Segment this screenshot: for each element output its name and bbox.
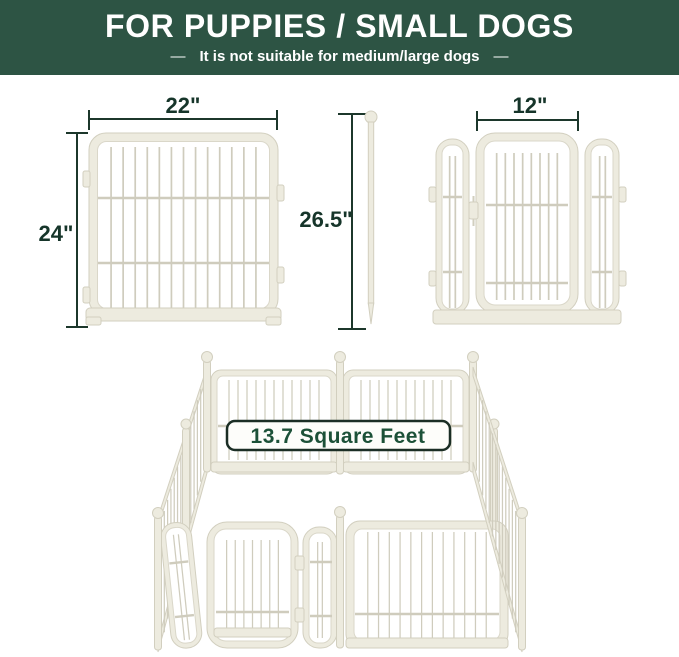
panel-height-label: 24" <box>39 221 74 246</box>
door-width-label: 12" <box>513 93 548 118</box>
playpen-diagram: 13.7 Square Feet <box>153 352 528 653</box>
stake-height-label: 26.5" <box>299 207 352 232</box>
subtitle-dash-right: — <box>494 48 509 65</box>
door-width-dimension: 12" <box>477 93 578 131</box>
subtitle-dash-left: — <box>170 48 185 65</box>
banner: FOR PUPPIES / SMALL DOGS — It is not sui… <box>0 0 679 75</box>
door-panel-diagram <box>429 133 626 324</box>
banner-subtitle: It is not suitable for medium/large dogs <box>199 48 479 65</box>
diagram-canvas: 22" 24" 26.5" 12" <box>0 75 679 657</box>
banner-subtitle-row: — It is not suitable for medium/large do… <box>170 48 508 65</box>
panel-height-dimension: 24" <box>39 133 88 327</box>
banner-title: FOR PUPPIES / SMALL DOGS <box>105 10 574 44</box>
door-latch <box>469 202 478 219</box>
fence-panel-diagram <box>83 133 284 325</box>
stake-diagram <box>365 111 377 324</box>
panel-width-label: 22" <box>166 93 201 118</box>
stake-height-dimension: 26.5" <box>299 114 366 329</box>
area-badge-label: 13.7 Square Feet <box>251 425 426 448</box>
panel-width-dimension: 22" <box>89 93 277 130</box>
